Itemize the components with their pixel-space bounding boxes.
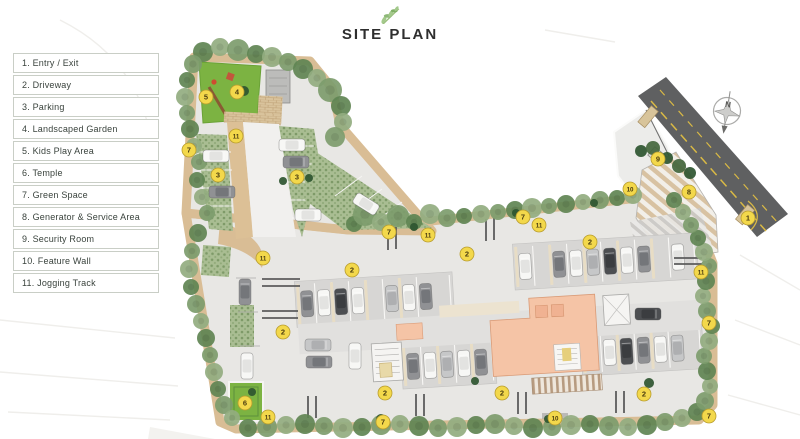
legend-item-green-space: 7. Green Space (13, 185, 159, 205)
plan-badge-1: 1 (741, 211, 755, 225)
tree-icon (396, 420, 403, 427)
tree-icon (184, 110, 190, 116)
car-icon (241, 353, 253, 379)
svg-text:11: 11 (698, 270, 705, 277)
svg-text:3: 3 (295, 173, 299, 182)
svg-text:2: 2 (281, 328, 285, 337)
tree-icon (358, 423, 365, 430)
tree-icon (299, 65, 307, 73)
tree-icon (192, 300, 199, 307)
svg-text:5: 5 (204, 93, 208, 102)
tree-icon (279, 177, 287, 185)
legend-item-parking: 3. Parking (13, 97, 159, 117)
tree-icon (199, 194, 205, 200)
tree-icon (471, 377, 479, 385)
tree-icon (624, 423, 631, 430)
tree-icon (194, 177, 200, 183)
tree-icon (453, 423, 461, 431)
tree-icon (189, 60, 196, 67)
car-icon (671, 244, 685, 271)
car-icon (635, 308, 661, 320)
car-icon (603, 339, 617, 366)
plan-badge-10: 10 (623, 182, 637, 196)
tree-icon (661, 418, 668, 425)
site-plan-page: SITE PLAN 1. Entry / Exit2. Driveway3. P… (0, 0, 800, 439)
tree-icon (586, 420, 593, 427)
plan-badge-4: 4 (230, 85, 244, 99)
plan-badge-7: 7 (702, 409, 716, 423)
tree-icon (325, 85, 335, 95)
plan-badge-7: 7 (182, 143, 196, 157)
svg-text:11: 11 (425, 233, 432, 240)
tree-icon (284, 58, 291, 65)
tree-icon (207, 352, 213, 358)
svg-text:3: 3 (216, 171, 220, 180)
plan-badge-7: 7 (382, 225, 396, 239)
car-icon (385, 285, 399, 312)
car-icon (419, 283, 433, 310)
tree-icon (491, 420, 499, 428)
tree-icon (202, 334, 209, 341)
tree-icon (700, 248, 707, 255)
tree-icon (426, 210, 434, 218)
plan-badge-11: 11 (532, 218, 546, 232)
tree-icon (210, 368, 217, 375)
car-icon (440, 351, 454, 378)
title-block: SITE PLAN (300, 4, 480, 43)
tree-icon (443, 214, 450, 221)
plan-badge-11: 11 (261, 410, 275, 424)
green-strip (230, 305, 254, 347)
tree-icon (410, 223, 418, 231)
svg-text:7: 7 (187, 146, 191, 155)
tree-icon (185, 265, 192, 272)
tree-icon (562, 200, 569, 207)
car-icon (305, 339, 331, 351)
svg-text:6: 6 (243, 399, 247, 408)
tree-icon (510, 422, 517, 429)
svg-text:7: 7 (707, 412, 711, 421)
svg-text:2: 2 (500, 389, 504, 398)
plan-badge-10: 10 (548, 411, 562, 425)
tree-icon (635, 145, 647, 157)
plan-badge-3: 3 (211, 168, 225, 182)
plan-badge-5: 5 (199, 90, 213, 104)
svg-text:7: 7 (381, 418, 385, 427)
svg-text:2: 2 (383, 389, 387, 398)
svg-text:9: 9 (656, 155, 660, 164)
tree-icon (644, 378, 654, 388)
car-icon (620, 247, 634, 274)
tree-icon (268, 53, 276, 61)
tree-icon (215, 386, 221, 392)
tree-icon (701, 353, 707, 359)
tree-icon (707, 383, 713, 389)
tree-icon (495, 209, 501, 215)
tree-icon (234, 46, 243, 55)
tree-icon (337, 102, 345, 110)
tree-icon (248, 388, 256, 396)
car-icon (586, 249, 600, 276)
plan-badge-2: 2 (637, 387, 651, 401)
svg-text:7: 7 (521, 213, 525, 222)
tree-icon (567, 421, 575, 429)
tree-icon (688, 222, 694, 228)
tree-icon (477, 210, 484, 217)
plan-badge-11: 11 (421, 228, 435, 242)
car-icon (671, 335, 685, 362)
tree-icon (693, 408, 700, 415)
tree-icon (394, 212, 403, 221)
svg-text:2: 2 (350, 266, 354, 275)
car-icon (295, 209, 321, 221)
tree-icon (472, 421, 479, 428)
tree-icon (313, 74, 320, 81)
car-icon (423, 352, 437, 379)
tree-icon (703, 307, 710, 314)
car-icon (283, 156, 309, 168)
tree-icon (189, 248, 195, 254)
tree-icon (216, 43, 223, 50)
car-icon (603, 248, 617, 275)
plan-badge-11: 11 (694, 265, 708, 279)
tree-icon (546, 203, 552, 209)
plan-badge-9: 9 (651, 152, 665, 166)
svg-text:8: 8 (687, 188, 691, 197)
legend-item-driveway: 2. Driveway (13, 75, 159, 95)
page-title: SITE PLAN (300, 26, 480, 43)
tree-icon (680, 209, 686, 215)
legend-item-temple: 6. Temple (13, 163, 159, 183)
tree-icon (672, 159, 686, 173)
tree-icon (695, 235, 701, 241)
svg-text:7: 7 (387, 228, 391, 237)
tree-icon (643, 421, 651, 429)
tree-icon (703, 367, 710, 374)
car-icon (637, 246, 651, 273)
car-icon (334, 288, 348, 315)
plan-badge-2: 2 (460, 247, 474, 261)
plan-badge-2: 2 (583, 235, 597, 249)
svg-text:10: 10 (552, 416, 559, 423)
compass-north-icon: N (710, 89, 743, 136)
tree-icon (229, 415, 235, 421)
tree-icon (701, 397, 708, 404)
plan-badge-7: 7 (516, 210, 530, 224)
legend-item-entry-exit: 1. Entry / Exit (13, 53, 159, 73)
car-icon (654, 336, 668, 363)
legend-item-jogging-track: 11. Jogging Track (13, 273, 159, 293)
play-equipment (211, 79, 216, 84)
car-icon (406, 353, 420, 380)
tree-icon (186, 125, 193, 132)
tree-icon (705, 337, 712, 344)
tree-icon (339, 424, 347, 432)
svg-text:2: 2 (465, 250, 469, 259)
tree-icon (684, 167, 696, 179)
tree-icon (194, 229, 201, 236)
tree-icon (188, 284, 194, 290)
plan-badge-11: 11 (256, 251, 270, 265)
plan-badge-2: 2 (276, 325, 290, 339)
tree-icon (199, 48, 207, 56)
tree-icon (461, 213, 467, 219)
car-icon (349, 343, 361, 369)
tree-icon (204, 210, 210, 216)
plan-badge-8: 8 (682, 185, 696, 199)
tree-icon (678, 414, 685, 421)
green-strip (201, 245, 231, 277)
car-icon (620, 338, 634, 365)
plan-badge-7: 7 (702, 316, 716, 330)
plan-badge-2: 2 (345, 263, 359, 277)
tree-icon (434, 424, 441, 431)
car-icon (203, 150, 229, 162)
legend-item-generator-service-area: 8. Generator & Service Area (13, 207, 159, 227)
car-icon (569, 250, 583, 277)
plan-badge-3: 3 (290, 170, 304, 184)
tree-icon (580, 199, 586, 205)
car-icon (474, 349, 488, 376)
svg-text:11: 11 (233, 134, 240, 141)
tree-icon (614, 195, 620, 201)
tree-icon (244, 424, 251, 431)
legend: 1. Entry / Exit2. Driveway3. Parking4. L… (13, 53, 159, 295)
legend-item-kids-play-area: 5. Kids Play Area (13, 141, 159, 161)
car-icon (457, 350, 471, 377)
tree-icon (590, 199, 598, 207)
plan-badge-2: 2 (495, 386, 509, 400)
tree-icon (282, 421, 289, 428)
tree-icon (181, 93, 188, 100)
tree-icon (196, 159, 202, 165)
plan-badge-6: 6 (238, 396, 252, 410)
tree-icon (252, 50, 259, 57)
car-icon (279, 139, 305, 151)
car-icon (518, 253, 532, 280)
tree-icon (198, 318, 204, 324)
svg-text:1: 1 (746, 214, 750, 223)
legend-item-landscaped-garden: 4. Landscaped Garden (13, 119, 159, 139)
tree-icon (339, 118, 346, 125)
tree-icon (415, 422, 423, 430)
car-icon (300, 290, 314, 317)
svg-text:7: 7 (707, 319, 711, 328)
legend-item-feature-wall: 10. Feature Wall (13, 251, 159, 271)
car-icon (239, 279, 251, 305)
plan-badge-7: 7 (376, 415, 390, 429)
svg-text:11: 11 (536, 223, 543, 230)
legend-item-security-room: 9. Security Room (13, 229, 159, 249)
tree-icon (301, 420, 309, 428)
car-icon (209, 186, 235, 198)
svg-text:11: 11 (260, 256, 267, 263)
car-icon (552, 251, 566, 278)
tree-icon (305, 174, 313, 182)
car-icon (317, 289, 331, 316)
tree-icon (377, 218, 384, 225)
svg-text:2: 2 (588, 238, 592, 247)
plan-badge-11: 11 (229, 129, 243, 143)
tree-icon (700, 293, 706, 299)
svg-text:2: 2 (642, 390, 646, 399)
car-icon (306, 356, 332, 368)
tree-icon (529, 424, 537, 432)
tree-icon (331, 133, 339, 141)
car-icon (351, 287, 365, 314)
svg-text:10: 10 (627, 187, 634, 194)
svg-text:11: 11 (265, 415, 272, 422)
lobby (396, 323, 423, 341)
car-icon (637, 337, 651, 364)
tree-icon (671, 197, 677, 203)
tree-icon (320, 422, 327, 429)
tree-icon (184, 77, 190, 83)
tree-icon (220, 401, 227, 408)
tree-icon (605, 422, 613, 430)
tree-icon (528, 204, 536, 212)
car-icon (402, 284, 416, 311)
plan-badge-2: 2 (378, 386, 392, 400)
leaf-icon (373, 4, 407, 24)
